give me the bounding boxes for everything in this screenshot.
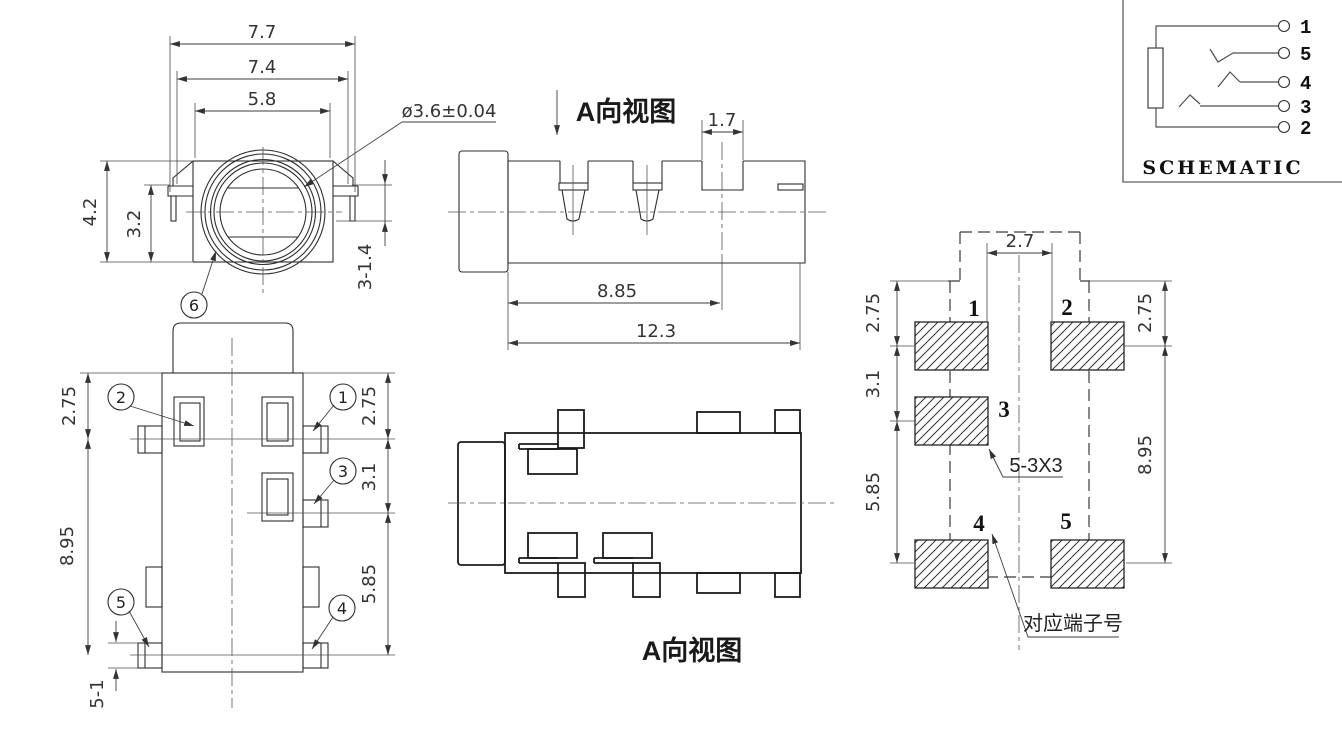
dim-5-8: 5.8 [248,89,277,110]
dim-2-75-left: 2.75 [59,386,80,426]
dim-5-85: 5.85 [359,564,380,604]
side-notch [702,142,743,310]
callout-1-number: 1 [338,388,348,407]
land-pattern: 1 2 3 4 5 2.7 2.75 3.1 5.85 2.75 8.95 [863,231,1172,650]
dim-3-1-4: 3-1.4 [355,244,376,291]
aview-bottom-hook-2 [594,533,660,597]
callout-3-number: 3 [338,462,348,481]
schematic-pin-5: 5 [1300,44,1311,66]
callout-6: 6 [181,251,216,318]
front-left-pin [171,196,176,221]
callout-4-number: 4 [337,599,347,618]
pad-2 [1051,322,1124,370]
side-barrel [459,151,508,272]
pad-3 [915,397,988,445]
aview-stub [458,442,505,565]
pad-2-number: 2 [1061,295,1073,320]
schematic-pin-4: 4 [1300,73,1311,95]
pad-4 [915,540,988,588]
side-right-tab [778,184,803,190]
aview-bottom-right-tabs [697,573,800,597]
callout-6-number: 6 [189,296,199,315]
front-right-pin [350,196,355,221]
land-dim-3-1: 3.1 [863,370,884,399]
pad-3-number: 3 [998,397,1010,422]
schematic-pin-3: 3 [1300,97,1311,119]
callout-2: 2 [108,384,194,426]
side-pin-2 [633,161,662,235]
side-view: A向视图 [448,90,830,350]
side-pin-1 [559,161,588,235]
schematic-sleeve-symbol [1148,48,1163,108]
bottom-terminal-centerlines [130,439,395,655]
dim-12-3: 12.3 [636,321,676,342]
dim-5-1: 5-1 [87,679,108,708]
bottom-body-outline [162,373,303,672]
view-direction-label: A向视图 [557,90,676,135]
aview-top-left-hook [519,410,584,474]
pad-1 [915,322,988,370]
pad-5-number: 5 [1060,509,1072,534]
callout-2-number: 2 [116,388,126,407]
dim-8-85: 8.85 [597,281,637,302]
pad-size-note: 5-3X3 [989,449,1063,477]
dim-8-95: 8.95 [57,526,78,566]
terminal-note-text: 对应端子号 [1023,612,1123,635]
pad-4-number: 4 [973,511,985,536]
bottom-view: 2.75 8.95 5-1 2.75 3.1 5.85 2 1 3 5 [57,323,395,709]
land-dim-2-75-left: 2.75 [863,293,884,333]
dim-3-1: 3.1 [359,463,380,492]
dim-diameter: ø3.6±0.04 [402,101,497,122]
callout-5-number: 5 [116,593,126,612]
dim-3-2: 3.2 [124,210,145,239]
engineering-drawing-page: 7.7 7.4 5.8 ø3.6±0.04 4.2 3.2 3-1.4 6 [0,0,1342,734]
land-dim-5-85: 5.85 [863,472,884,512]
callout-5: 5 [108,589,149,647]
drawing-canvas: 7.7 7.4 5.8 ø3.6±0.04 4.2 3.2 3-1.4 6 [0,0,1342,734]
front-left-flange [168,161,193,196]
side-dimensions [508,132,800,343]
bottom-holes [174,397,293,521]
dim-7-7: 7.7 [248,22,277,43]
dim-2-7: 2.7 [1006,231,1035,252]
front-view: 7.7 7.4 5.8 ø3.6±0.04 4.2 3.2 3-1.4 6 [80,22,496,318]
side-view-label: A向视图 [576,96,677,127]
a-view-label: A向视图 [642,635,743,666]
callout-1: 1 [313,384,356,431]
bottom-barrel [173,323,293,373]
callout-3: 3 [314,458,356,504]
bottom-terminals [138,426,328,668]
schematic-terminals [1279,21,1290,133]
side-extension-lines [508,120,800,350]
a-direction-view: A向视图 [448,410,838,666]
aview-top-right-tabs [697,410,800,433]
schematic-pin-2: 2 [1300,118,1311,140]
bottom-extension-lines [80,373,395,668]
schematic: 1 5 4 3 2 SCHEMATIC [1123,0,1342,182]
dim-4-2: 4.2 [80,198,101,227]
dim-1-7: 1.7 [708,110,737,131]
front-dimensions [107,44,496,262]
schematic-pin-1: 1 [1300,17,1311,39]
aview-bottom-hook-1 [519,533,585,597]
schematic-wires [1156,26,1278,127]
schematic-title: SCHEMATIC [1142,157,1303,179]
front-right-flange [333,161,358,196]
land-dim-8-95: 8.95 [1135,435,1156,475]
land-dim-2-75-right: 2.75 [1135,293,1156,333]
pad-5 [1051,540,1124,588]
pad-1-number: 1 [968,296,980,321]
dim-7-4: 7.4 [248,57,277,78]
dim-2-75-right: 2.75 [359,386,380,426]
pad-size-note-text: 5-3X3 [1009,455,1062,477]
